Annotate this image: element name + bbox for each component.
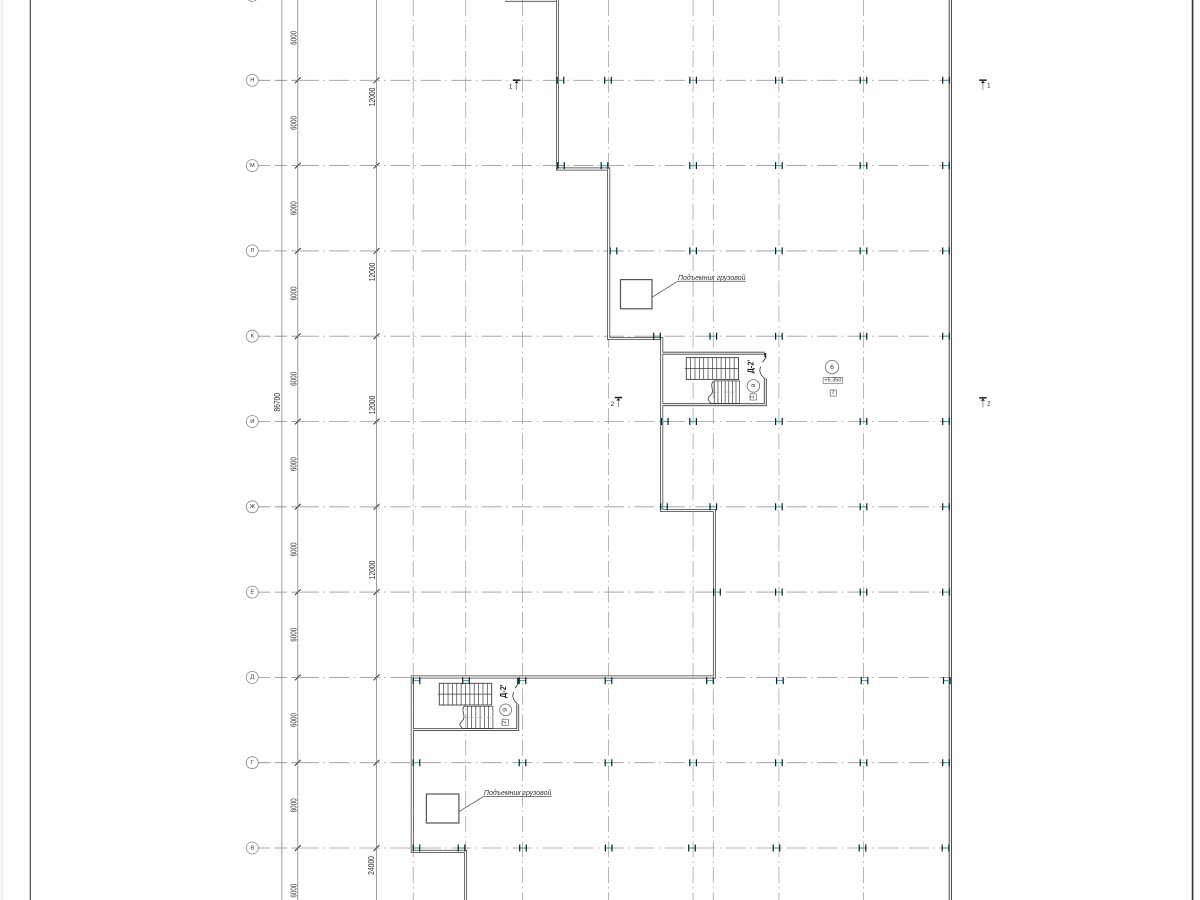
svg-text:12000: 12000 (368, 262, 377, 281)
svg-text:86700: 86700 (273, 392, 282, 411)
svg-text:Д-2': Д-2' (499, 684, 508, 698)
svg-text:12000: 12000 (368, 560, 377, 579)
svg-text:Н: Н (250, 78, 254, 84)
svg-text:6000: 6000 (289, 30, 298, 45)
svg-text:Подъемник грузовой: Подъемник грузовой (678, 274, 746, 282)
svg-text:9: 9 (502, 708, 509, 712)
svg-text:в: в (750, 383, 757, 387)
svg-text:2: 2 (987, 400, 991, 407)
svg-text:2: 2 (502, 721, 508, 724)
svg-text:6000: 6000 (289, 798, 298, 813)
svg-text:1: 1 (509, 83, 513, 90)
svg-text:Е: Е (250, 589, 254, 595)
svg-text:6000: 6000 (289, 713, 298, 728)
svg-text:6000: 6000 (289, 627, 298, 642)
svg-text:Подъемник грузовой: Подъемник грузовой (484, 789, 552, 797)
svg-text:6000: 6000 (289, 371, 298, 386)
svg-text:2: 2 (832, 390, 835, 396)
svg-text:6000: 6000 (289, 115, 298, 130)
svg-text:6000: 6000 (289, 542, 298, 557)
svg-text:6: 6 (830, 364, 834, 371)
svg-text:2: 2 (750, 395, 756, 398)
svg-text:Д: Д (250, 675, 254, 681)
svg-text:Д-2': Д-2' (747, 360, 756, 374)
svg-text:И: И (250, 419, 254, 425)
svg-text:Л: Л (250, 248, 254, 254)
svg-text:2: 2 (611, 401, 615, 408)
svg-text:12000: 12000 (368, 395, 377, 414)
svg-text:6000: 6000 (289, 457, 298, 472)
svg-text:+5.350: +5.350 (824, 378, 841, 384)
svg-text:24000: 24000 (367, 856, 376, 875)
svg-text:6000: 6000 (289, 286, 298, 301)
svg-text:В: В (250, 845, 254, 851)
svg-text:1: 1 (987, 83, 991, 90)
svg-text:Ж: Ж (250, 504, 256, 510)
svg-text:6000: 6000 (289, 883, 298, 898)
svg-text:6000: 6000 (289, 201, 298, 216)
svg-text:М: М (250, 163, 255, 169)
svg-text:12000: 12000 (368, 87, 377, 106)
